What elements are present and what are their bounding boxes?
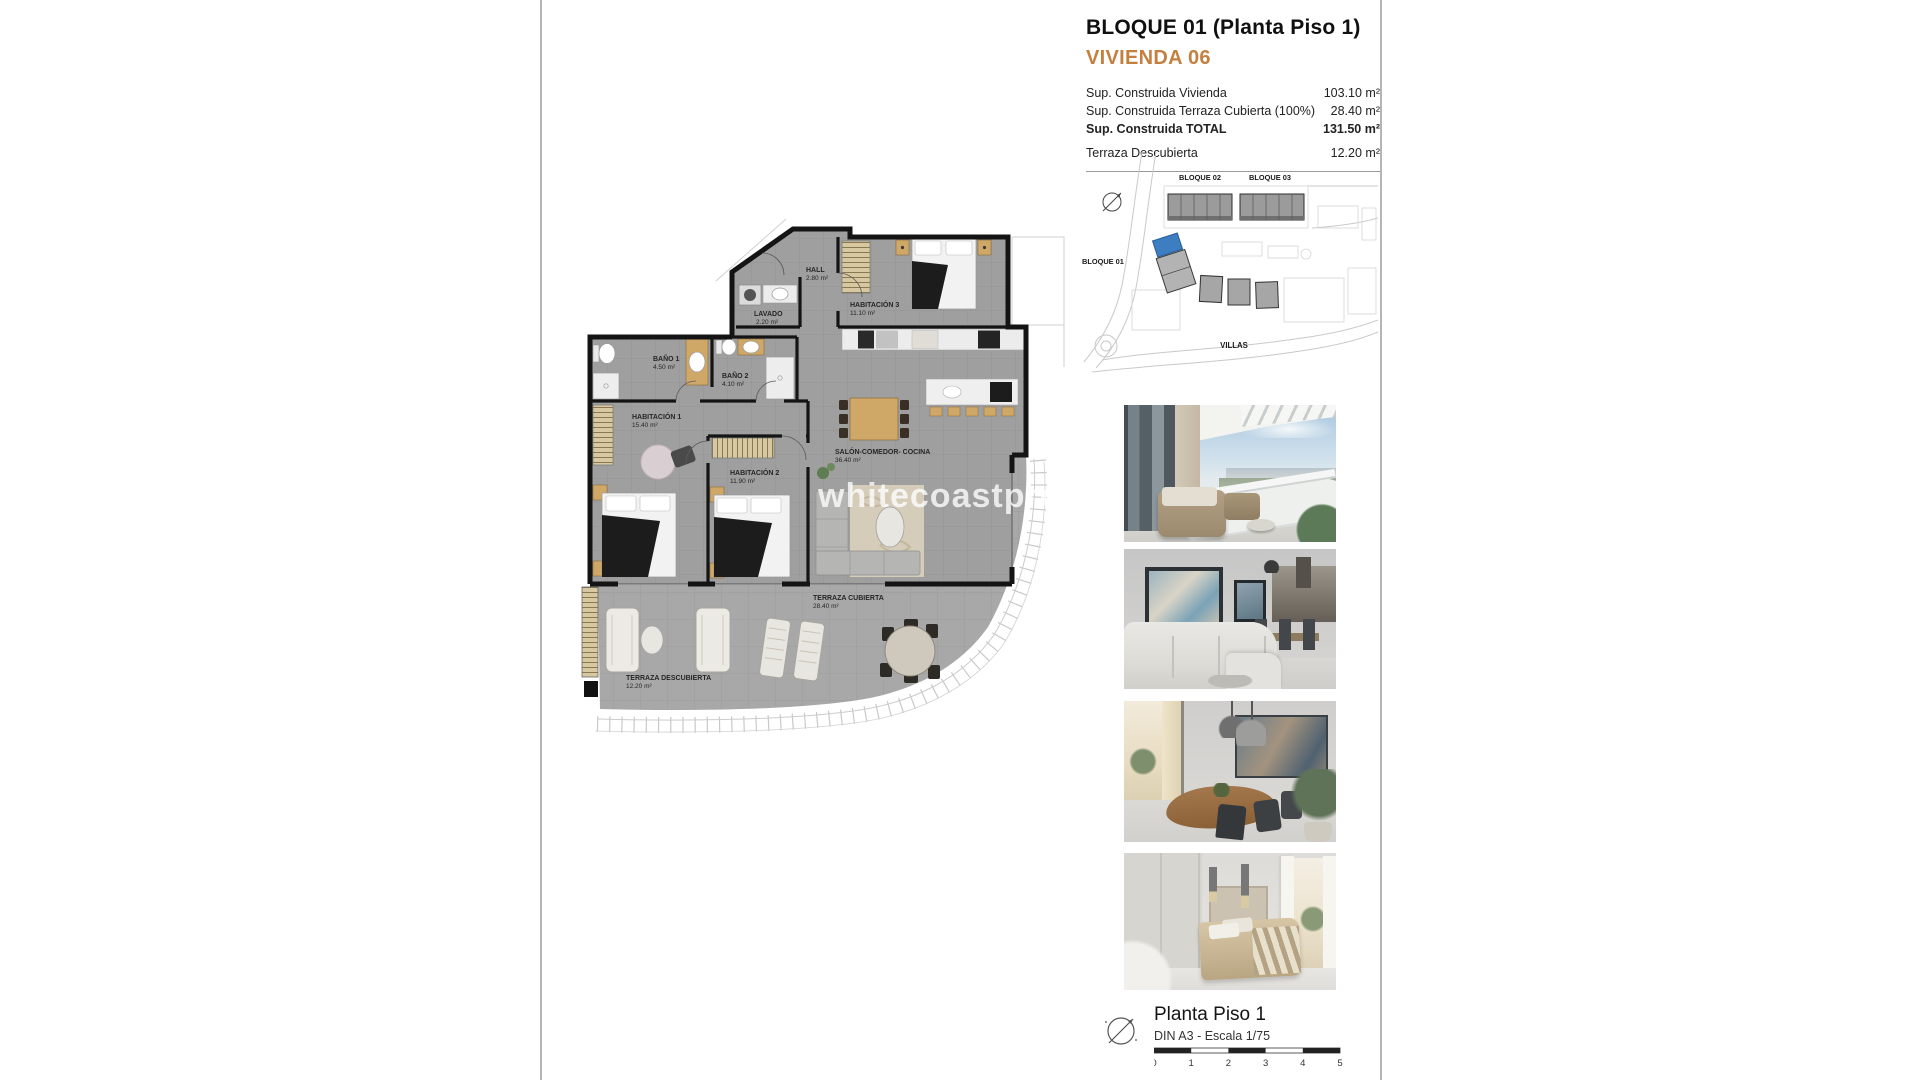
table-row-total: Sup. Construida TOTAL 131.50 m² xyxy=(1086,120,1380,138)
table-row: Sup. Construida Terraza Cubierta (100%) … xyxy=(1086,102,1380,120)
site-label-villas: VILLAS xyxy=(1220,341,1248,350)
unit-subtitle: VIVIENDA 06 xyxy=(1086,47,1380,70)
svg-text:TERRAZA DESCUBIERTA: TERRAZA DESCUBIERTA xyxy=(626,675,711,682)
svg-text:15.40 m²: 15.40 m² xyxy=(632,422,658,429)
row-value: 103.10 m² xyxy=(1324,84,1380,102)
footer-scale-note: DIN A3 - Escala 1/75 xyxy=(1154,1029,1270,1043)
scale-tick: 2 xyxy=(1226,1058,1231,1069)
scale-tick: 1 xyxy=(1189,1058,1194,1069)
header: BLOQUE 01 (Planta Piso 1) VIVIENDA 06 Su… xyxy=(1086,16,1380,172)
svg-text:12.20 m²: 12.20 m² xyxy=(626,683,652,690)
row-label: Sup. Construida Vivienda xyxy=(1086,84,1227,102)
brochure-page: { "page": { "rule_color": "#b5b5b5" }, "… xyxy=(0,0,1920,1080)
scale-bar: 0 1 2 3 4 5 xyxy=(1154,1046,1364,1072)
footer-plan-title: Planta Piso 1 xyxy=(1154,1004,1266,1026)
page-title: BLOQUE 01 (Planta Piso 1) xyxy=(1086,16,1380,40)
scale-tick: 3 xyxy=(1263,1058,1268,1069)
photo-bedroom xyxy=(1124,853,1336,990)
table-row: Sup. Construida Vivienda 103.10 m² xyxy=(1086,84,1380,102)
svg-text:LAVADO: LAVADO xyxy=(754,311,783,318)
photo-terrace-view xyxy=(1124,405,1336,542)
svg-text:HABITACIÓN 2: HABITACIÓN 2 xyxy=(730,468,779,477)
svg-text:HABITACIÓN 3: HABITACIÓN 3 xyxy=(850,300,899,309)
row-value: 28.40 m² xyxy=(1331,102,1380,120)
site-building-bloque01-highlight xyxy=(1151,232,1196,293)
site-villas xyxy=(1199,275,1278,308)
svg-text:2.80 m²: 2.80 m² xyxy=(806,275,829,282)
svg-text:4.50 m²: 4.50 m² xyxy=(653,364,676,371)
photo-living-room xyxy=(1124,549,1336,689)
svg-text:2.20 m²: 2.20 m² xyxy=(756,319,779,326)
svg-text:11.90 m²: 11.90 m² xyxy=(730,478,756,485)
photo-dining-area xyxy=(1124,701,1336,842)
svg-text:HABITACIÓN 1: HABITACIÓN 1 xyxy=(632,412,681,421)
page-border-right xyxy=(1380,0,1382,1080)
scale-tick: 0 xyxy=(1154,1058,1157,1069)
scale-tick: 4 xyxy=(1300,1058,1305,1069)
site-roads xyxy=(1084,152,1378,372)
svg-text:BAÑO 1: BAÑO 1 xyxy=(653,354,680,363)
site-building-bloque02 xyxy=(1168,194,1232,220)
svg-text:11.10 m²: 11.10 m² xyxy=(850,310,876,317)
site-plan: BLOQUE 02 BLOQUE 03 BLOQUE 01 VILLAS xyxy=(1072,150,1378,378)
site-building-bloque03 xyxy=(1240,194,1304,220)
site-label-bloque02: BLOQUE 02 xyxy=(1179,173,1221,182)
footer-compass-icon xyxy=(1098,1008,1144,1054)
site-label-bloque03: BLOQUE 03 xyxy=(1249,173,1291,182)
row-label: Sup. Construida TOTAL xyxy=(1086,120,1227,138)
row-value: 131.50 m² xyxy=(1323,120,1380,138)
floor-plan: HALL 2.80 m² LAVADO 2.20 m² HABITACIÓN 3… xyxy=(560,215,1090,845)
svg-text:HALL: HALL xyxy=(806,267,825,274)
scale-tick: 5 xyxy=(1337,1058,1342,1069)
page-border-left xyxy=(540,0,542,1080)
svg-text:36.40 m²: 36.40 m² xyxy=(835,457,861,464)
svg-text:SALÓN-COMEDOR- COCINA: SALÓN-COMEDOR- COCINA xyxy=(835,447,930,456)
svg-text:28.40 m²: 28.40 m² xyxy=(813,603,839,610)
svg-text:TERRAZA CUBIERTA: TERRAZA CUBIERTA xyxy=(813,595,884,602)
svg-text:4.10 m²: 4.10 m² xyxy=(722,381,745,388)
svg-text:BAÑO 2: BAÑO 2 xyxy=(722,371,749,380)
watermark: whitecoastproperties xyxy=(817,477,1090,515)
row-label: Sup. Construida Terraza Cubierta (100%) xyxy=(1086,102,1315,120)
site-compass-icon xyxy=(1103,193,1121,211)
